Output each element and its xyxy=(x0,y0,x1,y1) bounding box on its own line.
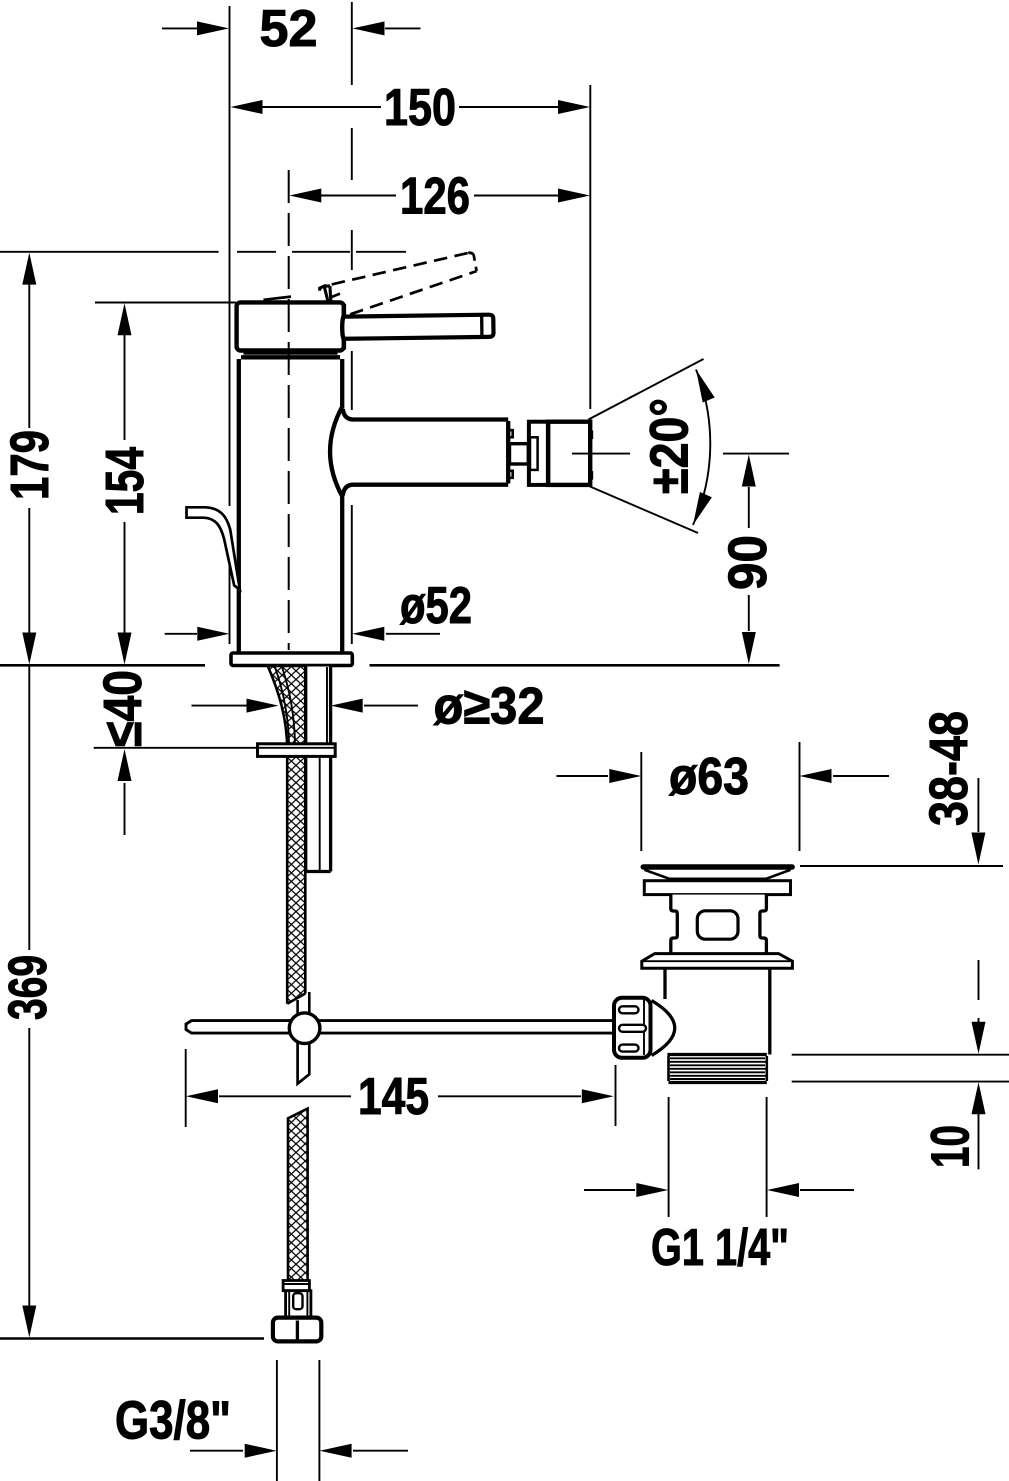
svg-text:154: 154 xyxy=(95,447,155,515)
svg-text:126: 126 xyxy=(400,168,470,226)
svg-text:179: 179 xyxy=(0,430,60,500)
svg-text:G3/8": G3/8" xyxy=(115,1390,231,1450)
svg-text:369: 369 xyxy=(0,955,58,1020)
svg-text:±20°: ±20° xyxy=(640,398,700,494)
svg-text:G1 1/4": G1 1/4" xyxy=(651,1219,789,1277)
svg-text:150: 150 xyxy=(384,79,456,137)
svg-text:10: 10 xyxy=(921,1125,981,1168)
svg-text:≤40: ≤40 xyxy=(93,670,153,747)
svg-text:ø63: ø63 xyxy=(669,748,749,806)
svg-text:145: 145 xyxy=(358,1068,429,1126)
svg-text:52: 52 xyxy=(260,0,318,58)
svg-text:ø≥32: ø≥32 xyxy=(434,678,545,736)
svg-text:90: 90 xyxy=(718,535,778,590)
svg-text:38-48: 38-48 xyxy=(919,711,979,826)
svg-text:ø52: ø52 xyxy=(400,577,472,635)
